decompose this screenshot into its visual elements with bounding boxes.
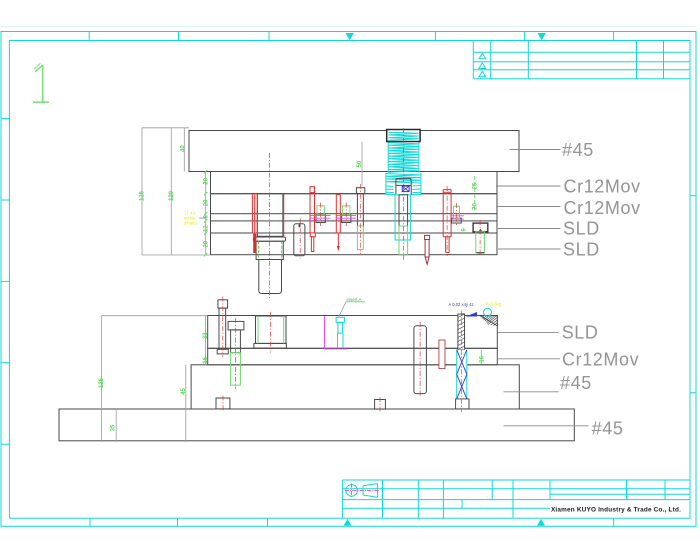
svg-text:Cr12Mov: Cr12Mov xyxy=(562,350,639,370)
svg-text:45: 45 xyxy=(181,388,187,395)
svg-text:125: 125 xyxy=(99,377,105,388)
svg-text:40: 40 xyxy=(181,145,187,152)
svg-text:#45: #45 xyxy=(592,419,624,439)
svg-text:SLD: SLD xyxy=(562,323,599,343)
svg-text:20: 20 xyxy=(203,240,209,247)
svg-text:20: 20 xyxy=(203,177,209,184)
svg-text:A 0.02 x4y 4z: A 0.02 x4y 4z xyxy=(449,302,474,307)
svg-text:20: 20 xyxy=(472,203,478,210)
svg-text:Xiamen KUYO Industry & Trade C: Xiamen KUYO Industry & Trade Co., Ltd. xyxy=(551,507,681,514)
svg-text:20: 20 xyxy=(203,199,209,206)
svg-text:Cr12Mov: Cr12Mov xyxy=(564,177,641,197)
svg-text:SLD: SLD xyxy=(563,219,600,239)
svg-text:25: 25 xyxy=(472,182,478,189)
svg-text:35: 35 xyxy=(111,424,117,431)
svg-text:125: 125 xyxy=(140,190,146,201)
svg-text:P=0.5kg: P=0.5kg xyxy=(486,302,502,307)
svg-text:12: 12 xyxy=(203,225,209,232)
svg-text:33: 33 xyxy=(203,332,209,339)
svg-text:16: 16 xyxy=(203,356,209,363)
svg-text:50: 50 xyxy=(357,160,363,167)
svg-text:16: 16 xyxy=(479,355,485,362)
svg-text:SLD: SLD xyxy=(563,240,600,260)
svg-text:Cr12Mov: Cr12Mov xyxy=(564,198,641,218)
svg-text:120: 120 xyxy=(169,190,175,201)
svg-text:insert A: insert A xyxy=(347,297,362,302)
svg-text:dihand: dihand xyxy=(184,221,197,226)
svg-text:#45: #45 xyxy=(562,140,594,160)
svg-text:#45: #45 xyxy=(560,373,592,393)
